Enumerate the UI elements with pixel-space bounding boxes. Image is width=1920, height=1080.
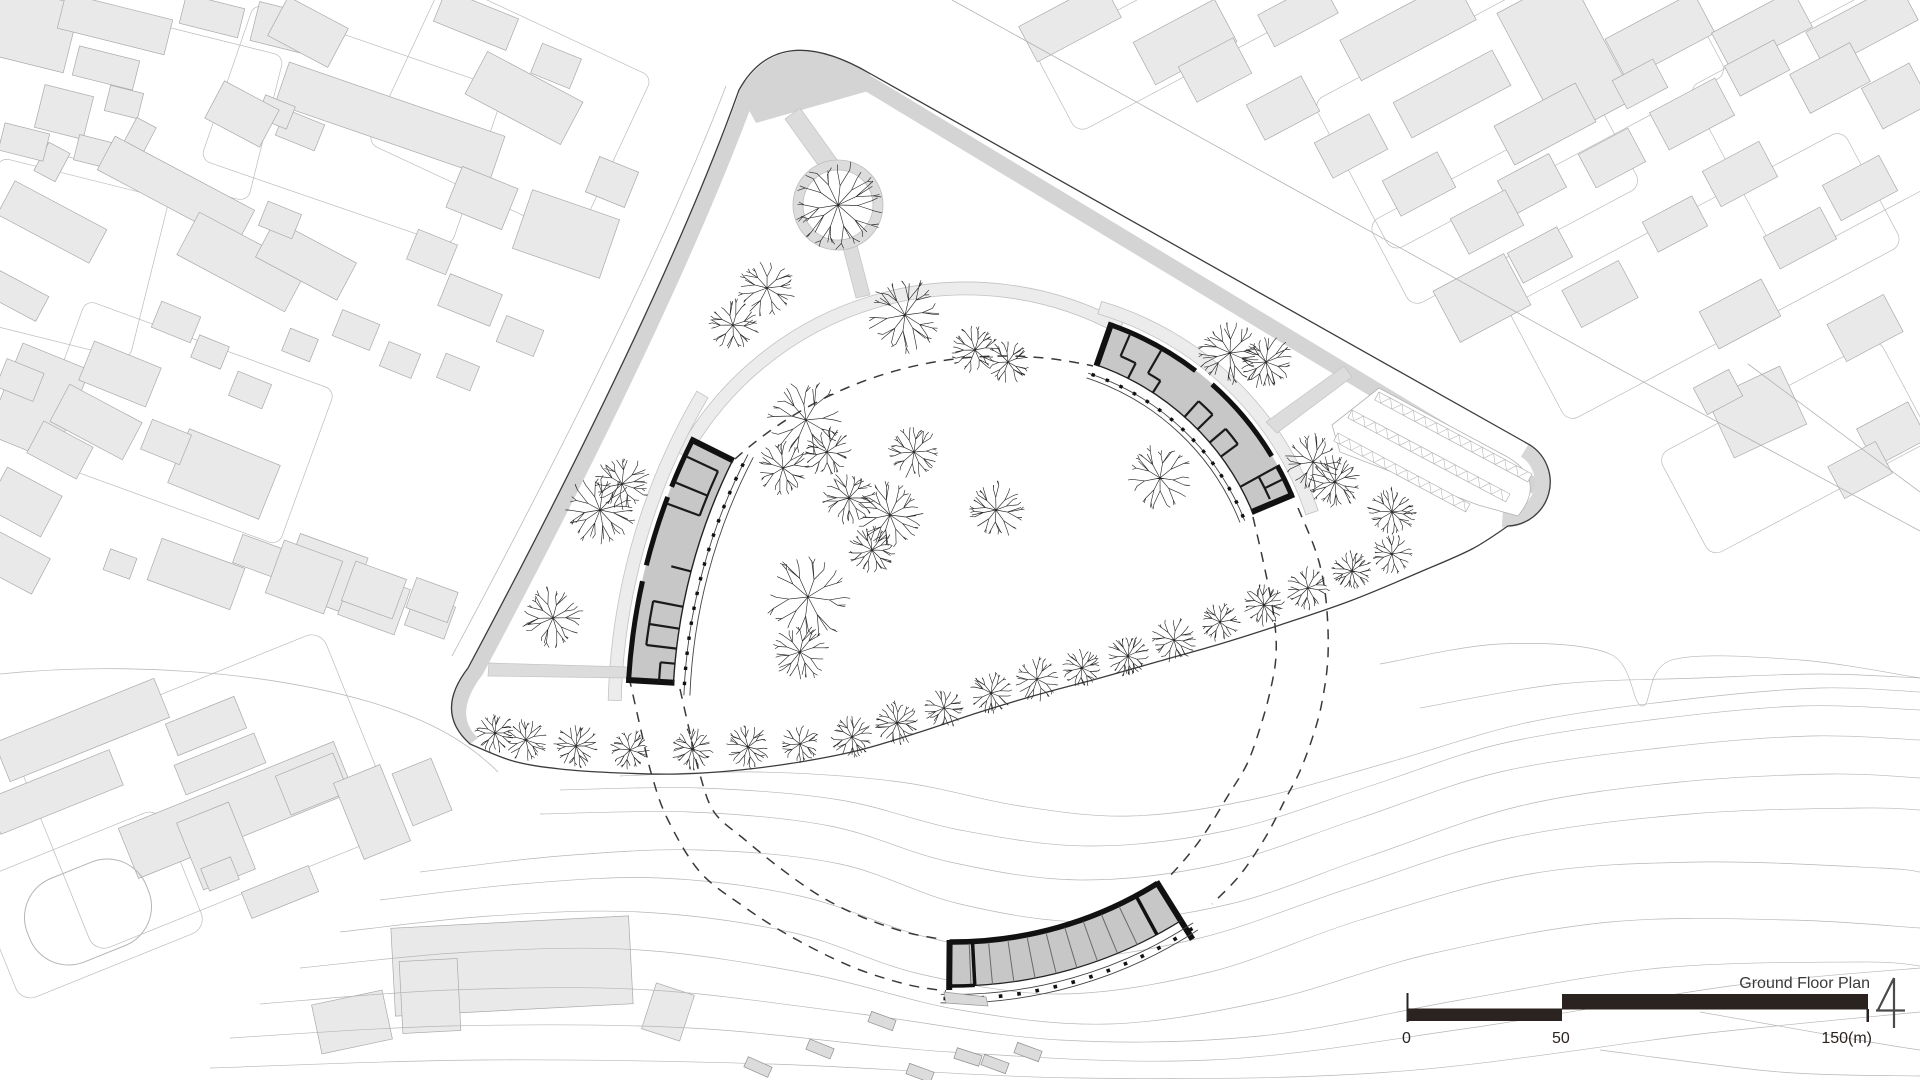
svg-text:50: 50 — [1552, 1030, 1570, 1047]
svg-text:150(m): 150(m) — [1821, 1030, 1872, 1047]
svg-text:0: 0 — [1402, 1030, 1411, 1047]
svg-text:Ground Floor Plan: Ground Floor Plan — [1739, 975, 1870, 992]
